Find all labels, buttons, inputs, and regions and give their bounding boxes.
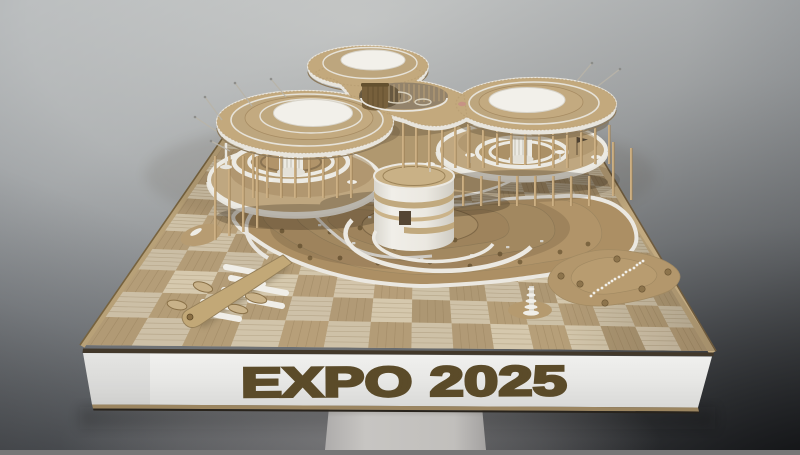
svg-text:EXPO 2025: EXPO 2025 bbox=[241, 357, 567, 406]
